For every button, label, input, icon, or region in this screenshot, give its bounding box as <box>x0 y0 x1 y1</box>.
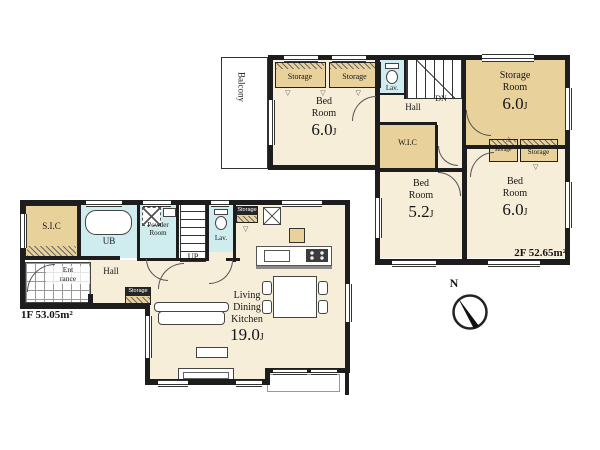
room-name: rance <box>46 275 90 284</box>
sic-label: S.I.C <box>25 221 78 232</box>
sic-hatch <box>27 246 76 256</box>
wall <box>268 165 380 170</box>
ldk-label: Living Dining Kitchen 19.0J <box>214 290 280 345</box>
wall <box>233 202 236 262</box>
kitchen-sink <box>264 250 290 262</box>
wall <box>404 57 406 99</box>
room-name: Living <box>214 290 280 302</box>
compass: N <box>440 276 500 336</box>
coffee-table <box>196 347 228 358</box>
room-size: 6.0J <box>467 94 563 114</box>
window <box>273 369 307 375</box>
powder-room-label: Powder Room <box>136 221 180 238</box>
closet-right: Storage <box>329 62 381 88</box>
wall <box>206 202 209 260</box>
closet-kitchen: Storage <box>236 206 258 223</box>
window <box>332 55 366 62</box>
room-size: 6.0J <box>275 120 373 140</box>
window <box>284 55 318 62</box>
window <box>268 100 275 145</box>
closet-pole-mark: △ <box>506 136 511 143</box>
wall <box>345 373 349 395</box>
window <box>345 284 352 322</box>
kitchen-cupboard <box>289 228 305 243</box>
bedroom1-label: Bed Room 6.0J <box>275 96 373 140</box>
stairs-up-label: UP <box>181 251 205 261</box>
window <box>488 260 540 267</box>
window <box>482 54 534 62</box>
window <box>565 88 572 130</box>
room-name: Bed <box>275 96 373 108</box>
balcony-label: Balcony <box>236 72 247 102</box>
wall <box>380 93 404 95</box>
vanity-sink <box>163 208 176 217</box>
closet-right-label: Storage <box>330 72 379 81</box>
balcony: Balcony <box>221 57 268 169</box>
room-name: Powder <box>136 221 180 229</box>
chair <box>318 300 328 314</box>
closet-b3: Storage <box>520 139 558 162</box>
window <box>158 380 188 387</box>
bedroom3-label: Bed Room 6.0J <box>468 176 562 220</box>
compass-circle <box>454 296 487 329</box>
lavatory-1f-label: Lav. <box>207 234 235 242</box>
bathtub <box>85 210 132 235</box>
room-name: Room <box>136 229 180 237</box>
room-name: Room <box>467 82 563 94</box>
tv-board-inner <box>183 372 229 379</box>
porch <box>267 374 340 392</box>
room-size: 19.0J <box>214 325 280 345</box>
closet-pole-mark: ▽ <box>243 226 248 233</box>
closet-hatch <box>237 216 257 222</box>
hall-2f-label: Hall <box>396 102 430 113</box>
window <box>311 369 337 375</box>
floor-plan-canvas: Balcony Storage Storage ▽ ▽ ▽ Storage St… <box>0 0 600 450</box>
room-name: Room <box>377 190 465 202</box>
bedroom2-label: Bed Room 5.2J <box>377 178 465 222</box>
toilet-tank-2f <box>385 63 399 69</box>
wall <box>462 145 565 149</box>
toilet-tank-1f <box>214 209 228 215</box>
storage-room-label: Storage Room 6.0J <box>467 70 563 114</box>
room-size: 5.2J <box>377 202 465 222</box>
room-name: Room <box>275 108 373 120</box>
closet-hatch <box>276 63 324 69</box>
room-size: 6.0J <box>468 200 562 220</box>
window <box>392 260 436 267</box>
room-name: Kitchen <box>214 314 280 326</box>
floor2-area-label: 2F 52.65m² <box>480 247 566 260</box>
room-name: Bed <box>377 178 465 190</box>
closet-pole-mark: ▽ <box>533 164 538 171</box>
wic-label: W.I.C <box>382 138 433 147</box>
room-name: Dining <box>214 302 280 314</box>
closet-hatch <box>330 63 379 69</box>
stairs-dn-label: DN <box>428 94 454 103</box>
window <box>86 200 122 207</box>
window <box>565 182 572 228</box>
wall <box>380 168 465 172</box>
room-name: Room <box>468 188 562 200</box>
ub-label: UB <box>92 236 126 247</box>
wall <box>78 202 81 258</box>
toilet-bowl-1f <box>215 216 227 230</box>
wall <box>462 57 466 149</box>
wall <box>20 256 120 260</box>
wall <box>565 55 570 265</box>
toilet-bowl-2f <box>386 70 398 84</box>
wall <box>380 122 437 125</box>
closet-kitchen-label: Storage <box>237 207 257 215</box>
chair <box>318 281 328 295</box>
room-name: Bed <box>468 176 562 188</box>
staircase-2f <box>406 57 463 99</box>
window <box>145 316 152 358</box>
window <box>143 200 171 207</box>
compass-needle <box>458 298 479 329</box>
closet-b3-label: Storage <box>521 148 556 156</box>
compass-rose <box>440 276 500 336</box>
wall <box>88 294 93 307</box>
closet-hall-label: Storage <box>126 288 150 296</box>
entrance-label: Ent rance <box>46 266 90 284</box>
counter-edge <box>256 266 332 269</box>
window <box>236 380 262 387</box>
closet-left-label: Storage <box>276 72 324 81</box>
room-name: Storage <box>467 70 563 82</box>
closet-left: Storage <box>275 62 326 88</box>
window <box>282 200 322 207</box>
lavatory-2f-label: Lav. <box>379 84 405 92</box>
floor1-area-label: 1F 53.05m² <box>21 309 121 322</box>
stove <box>306 249 328 262</box>
hall-1f-label: Hall <box>93 266 129 277</box>
refrigerator <box>263 207 281 225</box>
window <box>211 200 229 207</box>
